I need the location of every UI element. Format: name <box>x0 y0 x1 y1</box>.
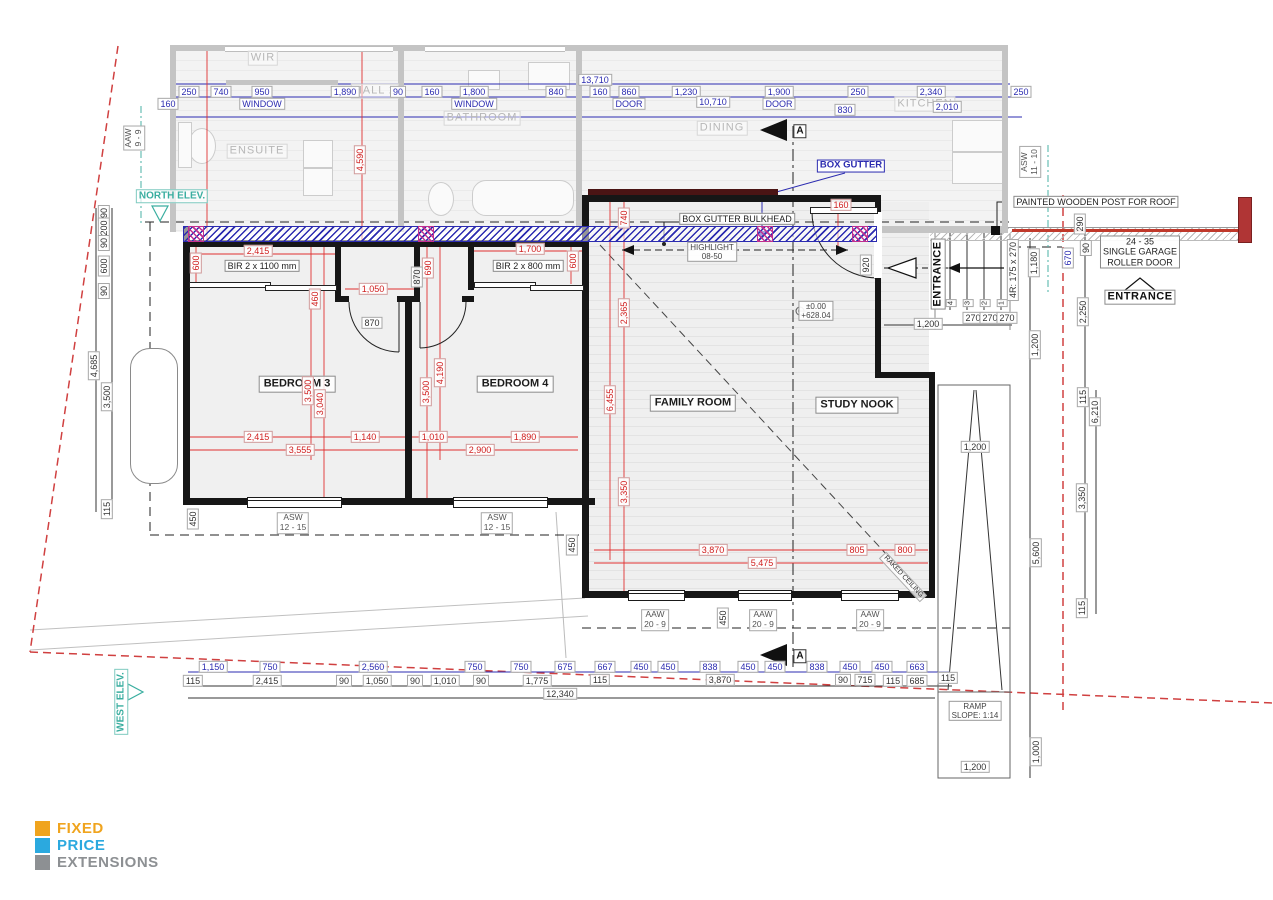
dimension-label: 2,340 <box>917 86 946 98</box>
logo-square-orange <box>35 821 50 836</box>
section-marker-a-bottom: A <box>793 649 806 663</box>
dimension-label: 860 <box>618 86 639 98</box>
window-label-aaw-20-9: AAW 20 - 9 <box>856 609 884 631</box>
room-label-dining: DINING <box>697 121 748 136</box>
level-marker: ±0.00 +628.04 <box>798 301 833 321</box>
room-label-family-room: FAMILY ROOM <box>650 395 736 412</box>
dimension-label: 160 <box>589 86 610 98</box>
dimension-label: 460 <box>309 288 321 309</box>
dimension-label: 1,775 <box>523 675 552 687</box>
dimension-label: 115 <box>183 675 203 687</box>
dimension-label: 3,500 <box>101 383 113 412</box>
dimension-label: 1,140 <box>351 431 380 443</box>
dimension-label: 2,365 <box>618 299 630 328</box>
dimension-label: 1,050 <box>359 283 388 295</box>
room-label-bathroom: BATHROOM <box>444 111 521 126</box>
dimension-label: 1,200 <box>961 761 990 773</box>
dimension-label: 450 <box>871 661 892 673</box>
dimension-label: 750 <box>464 661 485 673</box>
dimension-label: 450 <box>630 661 651 673</box>
room-label-ensuite: ENSUITE <box>227 144 288 159</box>
dimension-label: 2,250 <box>1077 298 1089 327</box>
dimension-label: 250 <box>847 86 868 98</box>
dimension-label: 115 <box>1076 598 1088 618</box>
dimension-label: 90 <box>473 675 489 687</box>
callout-ramp-slope: RAMP SLOPE: 1:14 <box>949 701 1002 721</box>
window-label-aaw-20-9: AAW 20 - 9 <box>641 609 669 631</box>
dimension-label: DOOR <box>613 98 646 110</box>
dimension-label: 1,010 <box>419 431 448 443</box>
row: EXTENSIONS <box>35 854 159 871</box>
dimension-label: 838 <box>699 661 720 673</box>
dimension-label: 6,210 <box>1089 398 1101 427</box>
window-label-asw-12-15: ASW 12 - 15 <box>481 512 513 534</box>
room-label-study-nook: STUDY NOOK <box>815 397 898 414</box>
dimension-label: 250 <box>1010 86 1031 98</box>
robe-label-bir-1100: BIR 2 x 1100 mm <box>225 260 300 272</box>
dimension-label: 1,050 <box>363 675 392 687</box>
dimension-label: 4 <box>946 299 957 307</box>
dimension-label: 3 <box>963 299 974 307</box>
dimension-label: 840 <box>545 86 566 98</box>
dimension-label: 750 <box>510 661 531 673</box>
section-marker-a-top: A <box>793 124 806 138</box>
dimension-label: 870 <box>361 317 382 329</box>
dimension-label: 600 <box>190 252 202 273</box>
dimension-label: 2 <box>980 299 991 307</box>
row: FIXED <box>35 820 159 837</box>
company-logo: FIXED PRICE EXTENSIONS <box>35 820 159 871</box>
dimension-label: 450 <box>566 534 578 555</box>
dimension-label: 2,560 <box>359 661 388 673</box>
callout-painted-post: PAINTED WOODEN POST FOR ROOF <box>1013 196 1178 208</box>
entrance-label-east: ENTRANCE <box>1104 290 1175 305</box>
dimension-label: 950 <box>251 86 272 98</box>
row: PRICE <box>35 837 159 854</box>
dimension-label: DOOR <box>763 98 796 110</box>
dimension-label: 450 <box>839 661 860 673</box>
dimension-label: 160 <box>157 98 178 110</box>
dimension-label: 830 <box>834 104 855 116</box>
callout-raked-ceiling: RAKED CEILING <box>879 552 927 603</box>
annotation-layer: WIRENSUITEHALL 2BATHROOMDININGKITCHEN13,… <box>0 0 1273 900</box>
dimension-label: 13,710 <box>578 74 612 86</box>
dimension-label: 115 <box>590 674 610 686</box>
dimension-label: 160 <box>830 199 851 211</box>
dimension-label: 2,900 <box>466 444 495 456</box>
callout-box-gutter-bulkhead: BOX GUTTER BULKHEAD <box>679 213 795 225</box>
dimension-label: 4,190 <box>434 359 446 388</box>
dimension-label: 90 <box>390 86 406 98</box>
dimension-label: 450 <box>764 661 785 673</box>
dimension-label: 115 <box>938 672 958 684</box>
callout-box-gutter: BOX GUTTER <box>817 160 885 173</box>
dimension-label: 2,415 <box>244 431 273 443</box>
dimension-label: 90 <box>835 674 851 686</box>
dimension-label: 450 <box>657 661 678 673</box>
logo-text-fixed: FIXED <box>57 820 104 837</box>
dimension-label: 663 <box>906 661 927 673</box>
dimension-label: 838 <box>806 661 827 673</box>
entrance-label-stairs: ENTRANCE <box>931 238 946 309</box>
dimension-label: 5,600 <box>1030 539 1042 568</box>
elevation-marker-west: WEST ELEV. <box>114 669 128 735</box>
dimension-label: 115 <box>101 499 113 519</box>
dimension-label: 805 <box>846 544 867 556</box>
dimension-label: 1,800 <box>460 86 489 98</box>
dimension-label: 450 <box>717 607 729 628</box>
dimension-label: 450 <box>187 508 199 529</box>
dimension-label: 115 <box>1077 387 1089 407</box>
logo-square-blue <box>35 838 50 853</box>
dimension-label: 715 <box>854 674 875 686</box>
robe-label-bir-800: BIR 2 x 800 mm <box>493 260 564 272</box>
callout-garage-roller-door: 24 - 35 SINGLE GARAGE ROLLER DOOR <box>1100 235 1180 268</box>
dimension-label: 670 <box>1062 247 1074 268</box>
dimension-label: 90 <box>98 235 110 251</box>
dimension-label: 1,900 <box>765 86 794 98</box>
dimension-label: 3,500 <box>302 377 314 406</box>
dimension-label: 3,350 <box>1076 484 1088 513</box>
dimension-label: 1,010 <box>431 675 460 687</box>
dimension-label: 740 <box>618 207 630 228</box>
dimension-label: 115 <box>883 675 903 687</box>
dimension-label: 1 <box>997 299 1008 307</box>
dimension-label: 3,870 <box>706 674 735 686</box>
dimension-label: 2,415 <box>244 245 273 257</box>
dimension-label: 3,040 <box>314 390 326 419</box>
room-label-bedroom-4: BEDROOM 4 <box>477 376 554 393</box>
window-label-asw-12-15: ASW 12 - 15 <box>277 512 309 534</box>
dimension-label: 270 <box>996 312 1017 324</box>
dimension-label: 600 <box>567 250 579 271</box>
dimension-label: 3,350 <box>618 478 630 507</box>
dimension-label: 1,200 <box>914 318 943 330</box>
dimension-label: 920 <box>860 254 872 275</box>
dimension-label: 1,180 <box>1028 249 1040 278</box>
dimension-label: 870 <box>411 266 423 287</box>
callout-highlight-window: HIGHLIGHT 08-50 <box>687 242 737 262</box>
dimension-label: 685 <box>906 675 927 687</box>
dimension-label: 6,455 <box>604 386 616 415</box>
dimension-label: 1,700 <box>516 243 545 255</box>
dimension-label: 1,200 <box>961 441 990 453</box>
dimension-label: 1,000 <box>1030 738 1042 767</box>
dimension-label: 4,590 <box>354 146 366 175</box>
dimension-label: 90 <box>98 283 110 299</box>
logo-text-price: PRICE <box>57 837 105 854</box>
dimension-label: 3,870 <box>699 544 728 556</box>
dimension-label: 90 <box>1080 240 1092 256</box>
dimension-label: 2,010 <box>933 101 962 113</box>
dimension-label: 4,685 <box>88 352 100 381</box>
dimension-label: 667 <box>594 661 615 673</box>
dimension-label: WINDOW <box>239 98 285 110</box>
dimension-label: 10,710 <box>696 96 730 108</box>
dimension-label: 740 <box>210 86 231 98</box>
window-label-asw-11-10: ASW 11 - 10 <box>1019 146 1041 178</box>
dimension-label: 1,150 <box>199 661 228 673</box>
dimension-label: 3,555 <box>286 444 315 456</box>
dimension-label: 450 <box>737 661 758 673</box>
dimension-label: 3,500 <box>420 378 432 407</box>
room-label-wir: WIR <box>248 51 278 66</box>
window-label-aaw-20-9: AAW 20 - 9 <box>749 609 777 631</box>
dimension-label: WINDOW <box>451 98 497 110</box>
dimension-label: 5,475 <box>748 557 777 569</box>
dimension-label: 675 <box>554 661 575 673</box>
elevation-marker-north: NORTH ELEV. <box>136 189 208 203</box>
dimension-label: 290 <box>1074 213 1086 234</box>
logo-text-extensions: EXTENSIONS <box>57 854 159 871</box>
dimension-label: 90 <box>336 675 352 687</box>
dimension-label: 2,415 <box>253 675 282 687</box>
dimension-label: 600 <box>98 255 110 276</box>
dimension-label: 4R: 175 x 270 <box>1007 239 1019 301</box>
logo-square-gray <box>35 855 50 870</box>
dimension-label: 1,890 <box>331 86 360 98</box>
dimension-label: 12,340 <box>543 688 577 700</box>
dimension-label: 250 <box>178 86 199 98</box>
window-label-aaw-9-9: AAW 9 - 9 <box>123 125 145 150</box>
dimension-label: 1,890 <box>511 431 540 443</box>
dimension-label: 160 <box>421 86 442 98</box>
dimension-label: 1,200 <box>1029 331 1041 360</box>
floor-plan-canvas: WIRENSUITEHALL 2BATHROOMDININGKITCHEN13,… <box>0 0 1273 900</box>
dimension-label: 800 <box>894 544 915 556</box>
dimension-label: 750 <box>259 661 280 673</box>
dimension-label: 690 <box>422 257 434 278</box>
dimension-label: 90 <box>407 675 423 687</box>
